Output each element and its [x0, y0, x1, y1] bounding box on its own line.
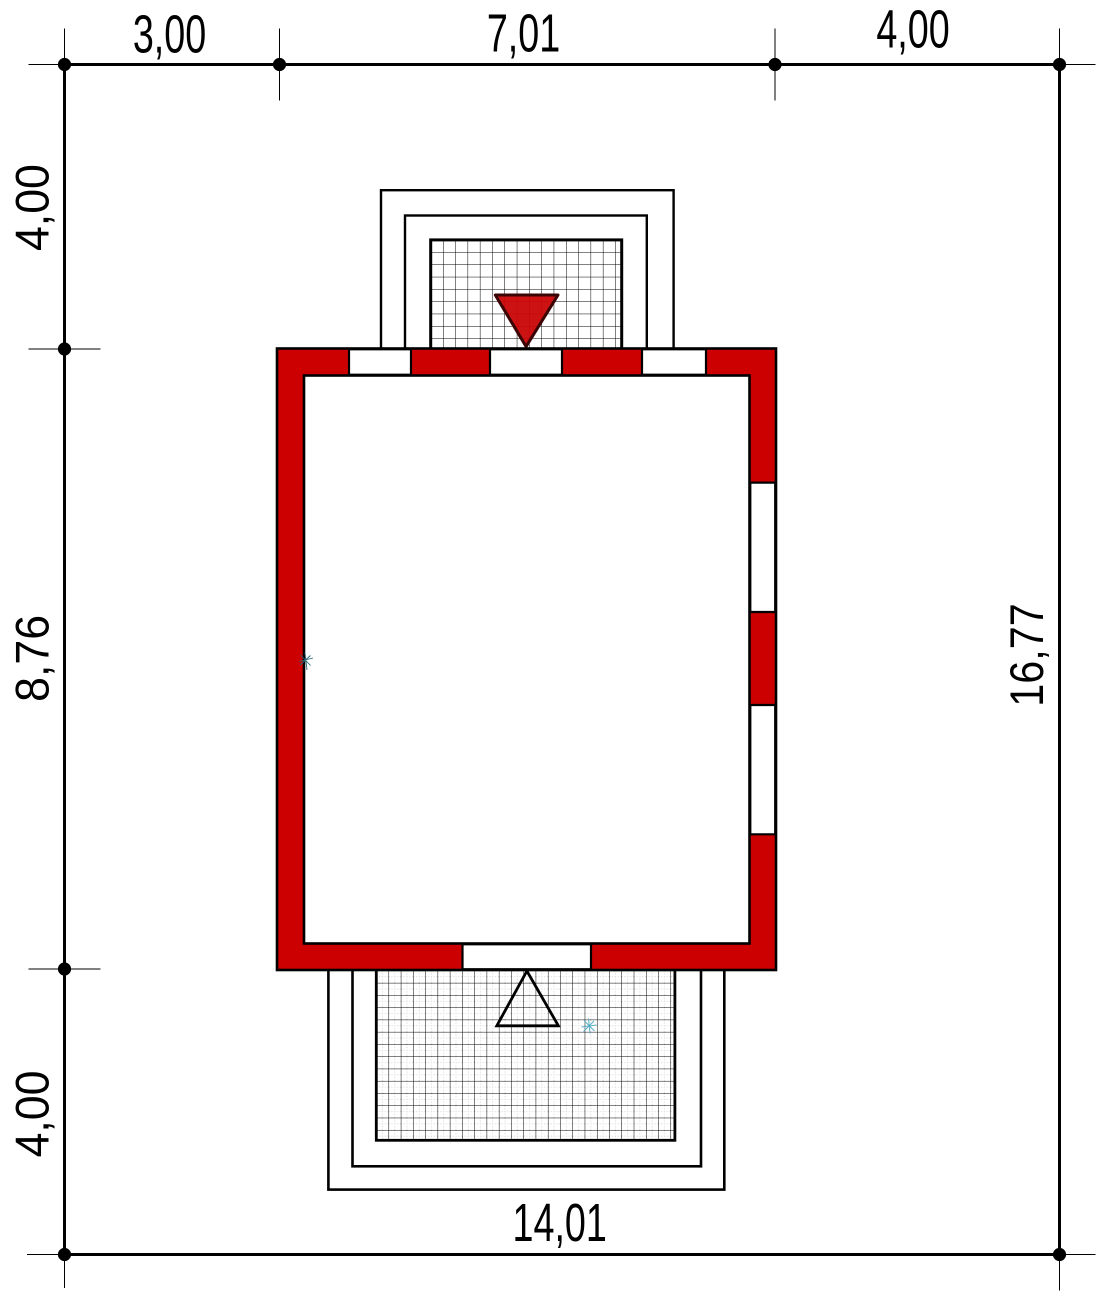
svg-text:3,00: 3,00	[133, 4, 206, 64]
svg-text:16,77: 16,77	[1002, 603, 1054, 706]
svg-text:14,01: 14,01	[513, 1192, 607, 1252]
svg-text:4,00: 4,00	[876, 0, 949, 59]
svg-text:8,76: 8,76	[6, 615, 58, 702]
svg-text:7,01: 7,01	[487, 3, 560, 63]
svg-text:4,00: 4,00	[6, 164, 58, 251]
svg-text:4,00: 4,00	[6, 1071, 58, 1158]
